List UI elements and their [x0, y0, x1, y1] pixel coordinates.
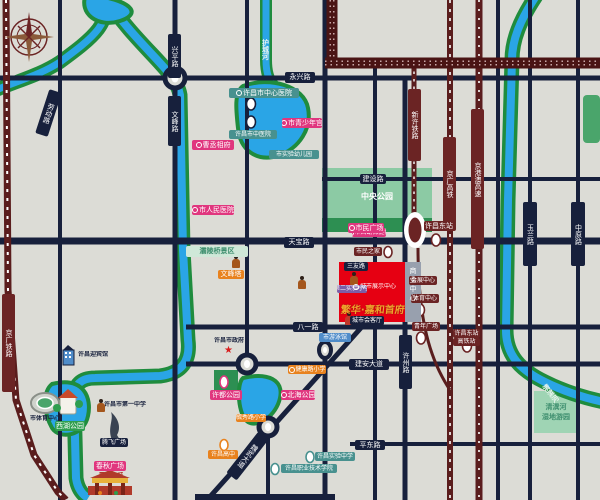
poi-experimental-school: 许昌实验中学 — [315, 452, 355, 461]
poi-jiankang-school: 健康路小学 — [288, 365, 326, 374]
rail-label-expressway: 京港澳高速 — [471, 109, 484, 249]
road-label-zhongyuan: 中原路 — [571, 202, 585, 266]
xudu-park-label: 许都公园 — [210, 390, 242, 400]
poi-city-reception: 城市会客厅 — [350, 316, 384, 325]
road-label-yongxing: 永兴路 — [285, 72, 315, 83]
hospital-icon — [192, 207, 198, 213]
rail-label-jingguang: 京广铁路 — [2, 294, 15, 392]
poi-yuxiu-school: 毓秀路小学 — [236, 414, 266, 422]
project-center-label: 城市展示中心 — [352, 283, 397, 291]
green-patch — [583, 95, 600, 143]
poi-swimming-pool: 市游泳馆 — [319, 333, 351, 342]
poi-peoples-hospital: 市人民医院 — [192, 205, 234, 215]
poi-caowei-oldtown: 曹魏古城 — [96, 472, 126, 480]
park-icon — [281, 392, 287, 398]
project-name: 繁华·嘉和首府 — [340, 301, 405, 316]
hospital-icon — [236, 90, 242, 96]
landmark-icon — [282, 120, 287, 126]
project-center-icon — [353, 284, 359, 290]
government-star-icon: ★ — [224, 346, 233, 356]
qingyi-park-label-2: 湿地游园 — [537, 413, 575, 422]
poi-kindergarten: 市实验幼儿园 — [269, 150, 319, 159]
qingyi-park-label-1: 清潩河 — [537, 403, 575, 412]
river-label-moat: 护城河 — [259, 25, 271, 73]
east-station-oval-inner — [409, 218, 422, 243]
landmark-icon — [349, 225, 355, 231]
poi-citizen-square: 市民广场 — [348, 223, 384, 233]
poi-city-government: 许昌市政府 — [211, 337, 247, 345]
road-label-xuzhou: 许州路 — [399, 335, 412, 389]
hotel-icon — [63, 345, 74, 365]
poi-caochengxiangfu: 曹丞相府 — [192, 140, 234, 150]
poi-vocational-college: 许昌职业技术学院 — [281, 464, 337, 473]
project-center-text: 城市展示中心 — [360, 284, 396, 290]
baling-park-label: 灞陵桥景区 — [186, 246, 248, 257]
statue-icon — [297, 276, 306, 289]
poi-sports-center: 市体育中心 — [26, 415, 64, 423]
station-label-gaotie-2: 高铁站 — [453, 338, 480, 346]
poi-central-hospital: 许昌市中心医院 — [229, 88, 299, 98]
road-label-yulan: 玉兰路 — [523, 202, 537, 266]
poi-wenfeng-pagoda: 文峰塔 — [218, 270, 244, 279]
road-label-jianan: 建安大道 — [349, 359, 389, 370]
poi-xuchang-highschool: 许昌高中 — [208, 450, 238, 459]
commercial-strip-label: 商业中心 — [408, 267, 418, 303]
road-label-wenfeng: 文峰路 — [168, 96, 181, 146]
poi-guesthouse: 许昌迎宾馆 — [76, 351, 110, 359]
road-label-tianbao: 天宝路 — [284, 237, 314, 248]
school-icon — [289, 367, 295, 373]
poi-tengfei-square: 腾飞广场 — [100, 438, 128, 447]
station-label-qingnian: 青年广场 — [412, 322, 440, 331]
poi-no1-middleschool: 许昌市第一中学 — [104, 401, 146, 409]
poi-youth-palace: 市青少年宫 — [282, 118, 322, 128]
poi-beihai-park: 北海公园 — [281, 390, 315, 400]
poi-tcm-hospital: 许昌市中医院 — [229, 130, 277, 139]
road-label-sanyou: 三友路 — [344, 262, 368, 271]
rail-label-gaotie: 京广高铁 — [443, 137, 456, 231]
rail-label-xinxu: 新许铁路 — [408, 89, 421, 161]
road-label-bayi: 八一路 — [293, 322, 323, 332]
station-label-dongzhan: 许昌东站 — [424, 221, 454, 231]
central-park-label: 中央公园 — [350, 191, 404, 203]
poi-chunqiu-square: 春秋广场 — [94, 461, 126, 471]
road-label-xingping: 兴平路 — [168, 34, 181, 78]
landmark-icon — [196, 142, 202, 148]
location-map: 商业中心 城市展示中心 繁华·嘉和首府 兴平路 文峰路 劳动路 永兴路 天宝路 … — [0, 0, 600, 500]
road-label-jianshe: 建设路 — [360, 174, 386, 184]
station-label-shiminzhijia: 市民之家 — [354, 247, 382, 256]
compass-icon — [4, 12, 54, 62]
road-label-pingdong: 平东路 — [355, 440, 385, 450]
station-label-gaotie-1: 许昌东站 — [453, 329, 480, 338]
